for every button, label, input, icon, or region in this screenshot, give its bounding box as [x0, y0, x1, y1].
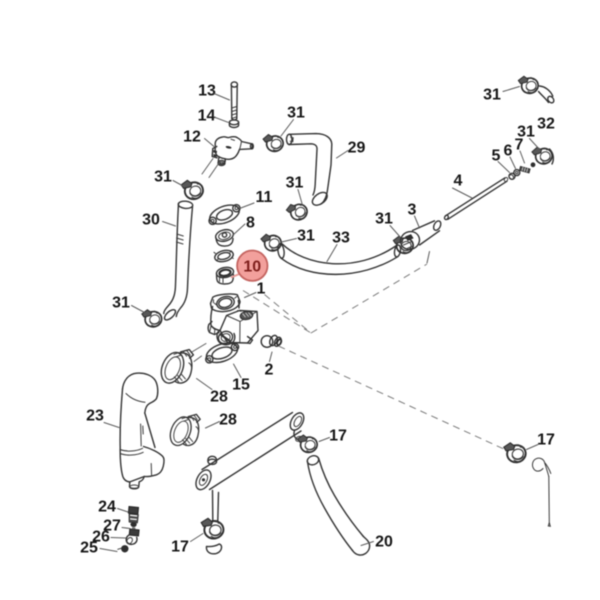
svg-text:31: 31: [517, 124, 535, 141]
svg-text:30: 30: [142, 212, 160, 229]
svg-text:10: 10: [243, 258, 261, 275]
svg-text:8: 8: [246, 215, 255, 232]
svg-text:11: 11: [256, 189, 273, 206]
svg-text:33: 33: [332, 230, 350, 247]
svg-text:31: 31: [286, 175, 304, 192]
svg-text:17: 17: [171, 539, 189, 556]
svg-text:31: 31: [375, 211, 393, 228]
svg-text:15: 15: [232, 377, 250, 394]
svg-text:5: 5: [492, 148, 501, 165]
svg-text:14: 14: [198, 108, 216, 125]
svg-text:20: 20: [375, 534, 393, 551]
svg-text:17: 17: [329, 428, 347, 445]
svg-text:31: 31: [297, 228, 315, 245]
svg-text:29: 29: [348, 140, 366, 157]
svg-text:31: 31: [154, 169, 172, 186]
svg-text:4: 4: [454, 173, 463, 190]
svg-text:31: 31: [112, 295, 130, 312]
svg-text:25: 25: [80, 540, 98, 557]
svg-text:3: 3: [408, 202, 417, 219]
svg-text:1: 1: [257, 281, 266, 298]
svg-text:17: 17: [537, 432, 555, 449]
svg-text:24: 24: [98, 499, 116, 516]
svg-text:2: 2: [265, 362, 274, 379]
svg-text:28: 28: [210, 389, 228, 406]
svg-text:32: 32: [537, 116, 555, 133]
svg-text:12: 12: [183, 129, 201, 146]
svg-text:28: 28: [219, 412, 237, 429]
svg-text:31: 31: [287, 105, 305, 122]
svg-text:23: 23: [86, 408, 104, 425]
svg-text:13: 13: [198, 83, 216, 100]
svg-text:6: 6: [504, 143, 513, 160]
svg-text:31: 31: [483, 87, 501, 104]
